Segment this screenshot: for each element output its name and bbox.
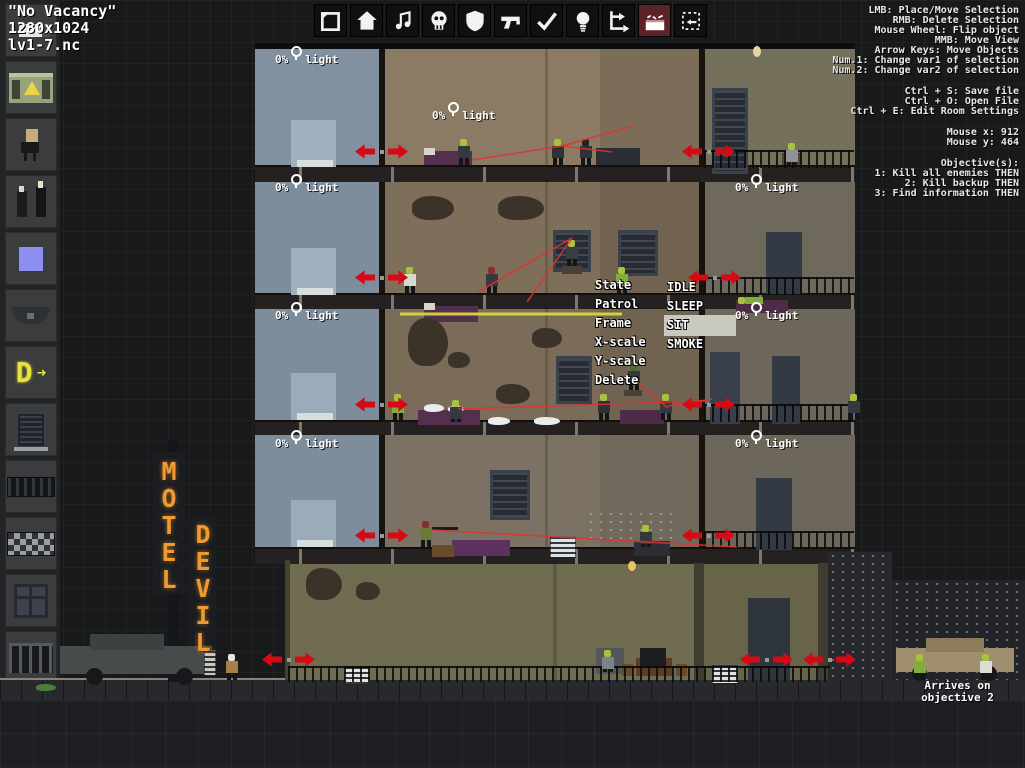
lightbulb-icon (448, 102, 459, 113)
light-word: light (305, 182, 338, 193)
arrival-note: Arrives on objective 2 (895, 680, 1020, 704)
limo-wheel (176, 668, 193, 685)
dark-window (490, 470, 530, 520)
door-dot (828, 658, 832, 662)
bed-tool-button[interactable] (638, 4, 671, 37)
menu-item-state[interactable]: State (595, 276, 665, 295)
car-roof (926, 638, 984, 652)
enemy[interactable] (420, 521, 432, 547)
enemy[interactable] (914, 654, 926, 680)
lightbulb-tool-button[interactable] (566, 4, 599, 37)
objectives-list: Objective(s):1: Kill all enemies THEN2: … (832, 159, 1019, 199)
light-word: light (765, 182, 798, 193)
dark-window (556, 356, 592, 404)
door-transition-marker[interactable] (355, 527, 408, 544)
arrow-right-icon (388, 396, 408, 413)
enemy[interactable] (552, 139, 564, 165)
help-line: Ctrl + E: Edit Room Settings (832, 107, 1019, 117)
ledge-box (624, 390, 642, 396)
light-word: light (305, 438, 338, 449)
neon-letter: L (153, 566, 185, 593)
bed (620, 410, 664, 424)
powder-pile (488, 417, 510, 425)
light-percent: 0% (275, 54, 288, 65)
arrow-left-icon (740, 651, 760, 668)
mouse-status: Mouse x: 912Mouse y: 464 (832, 128, 1019, 148)
pillow (424, 303, 435, 310)
wall-hole (408, 318, 448, 366)
light-level-label: 0%light (735, 302, 798, 321)
arrow-left-icon (682, 143, 702, 160)
menu-option-idle[interactable]: IDLE (665, 278, 735, 297)
menu-option-sleep[interactable]: SLEEP (665, 297, 735, 316)
arrow-left-icon (682, 527, 702, 544)
couch (452, 540, 510, 556)
help-line: Num.2: Change var2 of selection (832, 66, 1019, 76)
neon-letter: O (153, 485, 185, 512)
resize-region-tool-button[interactable] (674, 4, 707, 37)
enemy[interactable] (602, 650, 614, 672)
door-transition-marker[interactable] (682, 527, 735, 544)
menu-option-sit[interactable]: SIT (665, 316, 735, 335)
door-dot (380, 403, 384, 407)
arrow-left-icon (803, 651, 823, 668)
menu-item-x-scale[interactable]: X-scale (595, 333, 665, 352)
room-seam (545, 180, 548, 293)
enemy[interactable] (226, 654, 238, 680)
door-dot (707, 150, 711, 154)
menu-item-y-scale[interactable]: Y-scale (595, 352, 665, 371)
lightbulb-icon (751, 430, 762, 441)
light-percent: 0% (275, 182, 288, 193)
enemy[interactable] (598, 394, 610, 420)
tv (640, 648, 666, 666)
ac-unit (550, 536, 576, 558)
house-icon (354, 8, 380, 34)
lightbulb-icon (291, 46, 302, 57)
neon-letter: I (187, 602, 219, 629)
level-name: "No Vacancy" (8, 3, 116, 20)
wall-hole (356, 582, 380, 600)
neon-letter: D (187, 521, 219, 548)
light-level-label: 0%light (735, 430, 798, 449)
door-dot (380, 534, 384, 538)
powder-pile (424, 404, 444, 412)
objective-line: 3: Find information THEN (832, 189, 1019, 199)
bed (418, 410, 480, 425)
desk (596, 148, 640, 165)
room-seam (545, 307, 548, 420)
door-dot (380, 150, 384, 154)
arrow-right-icon (388, 527, 408, 544)
light-level-label: 0%light (432, 102, 495, 121)
skull-icon (426, 8, 452, 34)
room-seam (545, 433, 548, 547)
bullet-holes (586, 510, 674, 544)
arrow-right-icon (715, 143, 735, 160)
ground-seam (553, 562, 557, 680)
light-word: light (305, 310, 338, 321)
light-percent: 0% (735, 438, 748, 449)
rifle (432, 527, 458, 530)
selection-frame-icon (318, 8, 344, 34)
wall-hole (448, 352, 470, 368)
neon-letter: L (187, 629, 219, 656)
door-dot (707, 534, 711, 538)
pillow (424, 148, 435, 155)
controls-help: LMB: Place/Move SelectionRMB: Delete Sel… (832, 6, 1019, 76)
shield-icon (462, 8, 488, 34)
railing (288, 666, 830, 682)
door-dot (287, 658, 291, 662)
route-icon (606, 8, 632, 34)
level-filename: lv1-7.nc (8, 37, 116, 54)
lightbulb-icon (291, 302, 302, 313)
door-transition-marker[interactable] (682, 143, 735, 160)
neon-letter: V (187, 575, 219, 602)
hanging-lamp (628, 561, 636, 571)
neon-letter: M (153, 458, 185, 485)
enemy[interactable] (786, 143, 798, 165)
neon-letter: E (153, 539, 185, 566)
door-transition-marker[interactable] (355, 269, 408, 286)
light-percent: 0% (432, 110, 445, 121)
checkmark-tool-button[interactable] (530, 4, 563, 37)
enemy[interactable] (458, 139, 470, 165)
enemy[interactable] (660, 394, 672, 420)
door-transition-marker[interactable] (682, 396, 735, 413)
house-tool-button[interactable] (350, 4, 383, 37)
ledge-box (562, 266, 582, 274)
checkmark-icon (534, 8, 560, 34)
room-seam (545, 48, 548, 165)
shield-tool-button[interactable] (458, 4, 491, 37)
hanging-lamp (753, 46, 761, 57)
lightbulb-icon (570, 8, 596, 34)
enemy[interactable] (450, 400, 462, 422)
wall-hole (412, 196, 454, 220)
devil-sign: DEVIL (187, 521, 219, 656)
table (432, 545, 454, 557)
light-level-label: 0%light (735, 174, 798, 193)
lightbulb-icon (291, 174, 302, 185)
menu-option-smoke[interactable]: SMOKE (665, 335, 735, 354)
door-transition-marker[interactable] (803, 651, 856, 668)
elevator-sill (297, 540, 333, 547)
arrow-right-icon (773, 651, 793, 668)
wall-hole (532, 328, 562, 348)
enemy[interactable] (580, 139, 592, 165)
door-dot (765, 658, 769, 662)
enemy[interactable] (980, 654, 992, 680)
toolbar (314, 4, 707, 38)
light-percent: 0% (735, 182, 748, 193)
wall-hole (306, 568, 342, 600)
gun-tool-button[interactable] (494, 4, 527, 37)
light-percent: 0% (275, 310, 288, 321)
lightbulb-icon (751, 302, 762, 313)
enemy[interactable] (848, 394, 860, 420)
light-word: light (765, 310, 798, 321)
file-shortcuts-help: Ctrl + S: Save fileCtrl + O: Open FileCt… (832, 87, 1019, 117)
lightbulb-icon (751, 174, 762, 185)
roof-edge (255, 43, 855, 49)
arrow-left-icon (355, 527, 375, 544)
light-word: light (305, 54, 338, 65)
arrow-right-icon (388, 269, 408, 286)
enemy[interactable] (566, 240, 578, 266)
arrow-right-icon (715, 527, 735, 544)
gun-icon (498, 8, 524, 34)
bed-icon (642, 8, 668, 34)
neon-letter: E (187, 548, 219, 575)
limo-roof (90, 634, 164, 650)
arrow-right-icon (388, 143, 408, 160)
door-dot (707, 403, 711, 407)
wall-hole (498, 196, 544, 220)
door-transition-marker[interactable] (355, 396, 408, 413)
help-panel: LMB: Place/Move SelectionRMB: Delete Sel… (832, 6, 1019, 210)
motel-sign: MOTEL (153, 458, 185, 593)
door-dot (380, 276, 384, 280)
arrow-right-icon (715, 396, 735, 413)
music-note-tool-button[interactable] (386, 4, 419, 37)
door-transition-marker[interactable] (355, 143, 408, 160)
road (0, 700, 1025, 768)
music-note-icon (390, 8, 416, 34)
menu-item-frame[interactable]: Frame (595, 314, 665, 333)
lightbulb-icon (291, 430, 302, 441)
context-menu: StatePatrolFrameX-scaleY-scaleDelete IDL… (595, 276, 665, 390)
level-resolution: 1280x1024 (8, 20, 116, 37)
arrow-left-icon (355, 269, 375, 286)
light-level-label: 0%light (275, 46, 338, 65)
elevator-sill (297, 160, 333, 167)
status-line: Mouse y: 464 (832, 138, 1019, 148)
light-percent: 0% (735, 310, 748, 321)
light-level-label: 0%light (275, 430, 338, 449)
arrival-note-line2: objective 2 (895, 692, 1020, 704)
resize-region-icon (678, 8, 704, 34)
elevator-sill (297, 288, 333, 295)
light-word: light (765, 438, 798, 449)
skull-tool-button[interactable] (422, 4, 455, 37)
arrow-left-icon (262, 651, 282, 668)
enemy[interactable] (640, 525, 652, 547)
grass (36, 684, 56, 691)
enemy[interactable] (486, 267, 498, 293)
arrow-left-icon (355, 143, 375, 160)
wall-hole (496, 384, 530, 404)
light-level-label: 0%light (275, 302, 338, 321)
pillar (694, 563, 704, 680)
route-tool-button[interactable] (602, 4, 635, 37)
menu-item-patrol[interactable]: Patrol (595, 295, 665, 314)
arrow-left-icon (682, 396, 702, 413)
window-info: "No Vacancy" 1280x1024 lv1-7.nc (8, 3, 116, 54)
arrow-left-icon (355, 396, 375, 413)
limo-wheel (86, 668, 103, 685)
menu-item-delete[interactable]: Delete (595, 371, 665, 390)
powder-pile (534, 417, 560, 425)
light-level-label: 0%light (275, 174, 338, 193)
light-percent: 0% (275, 438, 288, 449)
door-transition-marker[interactable] (262, 651, 315, 668)
neon-letter: T (153, 512, 185, 539)
arrow-right-icon (295, 651, 315, 668)
light-word: light (462, 110, 495, 121)
selection-frame-tool-button[interactable] (314, 4, 347, 37)
door-transition-marker[interactable] (740, 651, 793, 668)
arrow-right-icon (836, 651, 856, 668)
elevator-sill (297, 413, 333, 420)
